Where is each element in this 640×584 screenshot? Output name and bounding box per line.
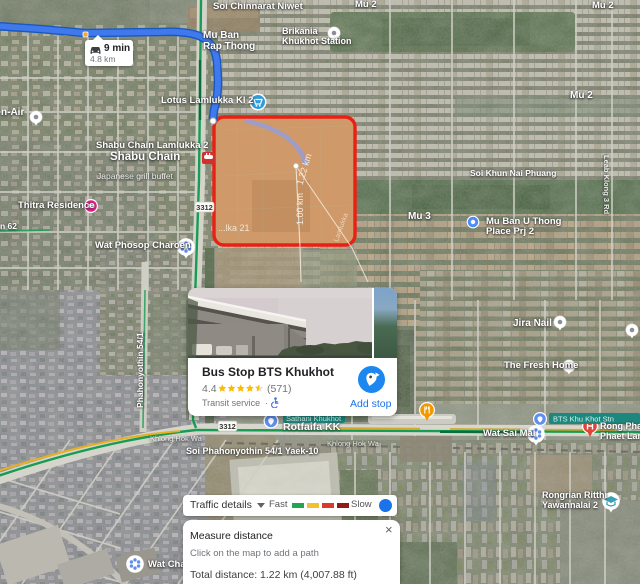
svg-text:3312: 3312	[196, 203, 213, 212]
svg-text:3312: 3312	[219, 422, 236, 431]
svg-text:1.00 km: 1.00 km	[295, 193, 305, 225]
svg-text:...lka 21: ...lka 21	[218, 223, 250, 233]
